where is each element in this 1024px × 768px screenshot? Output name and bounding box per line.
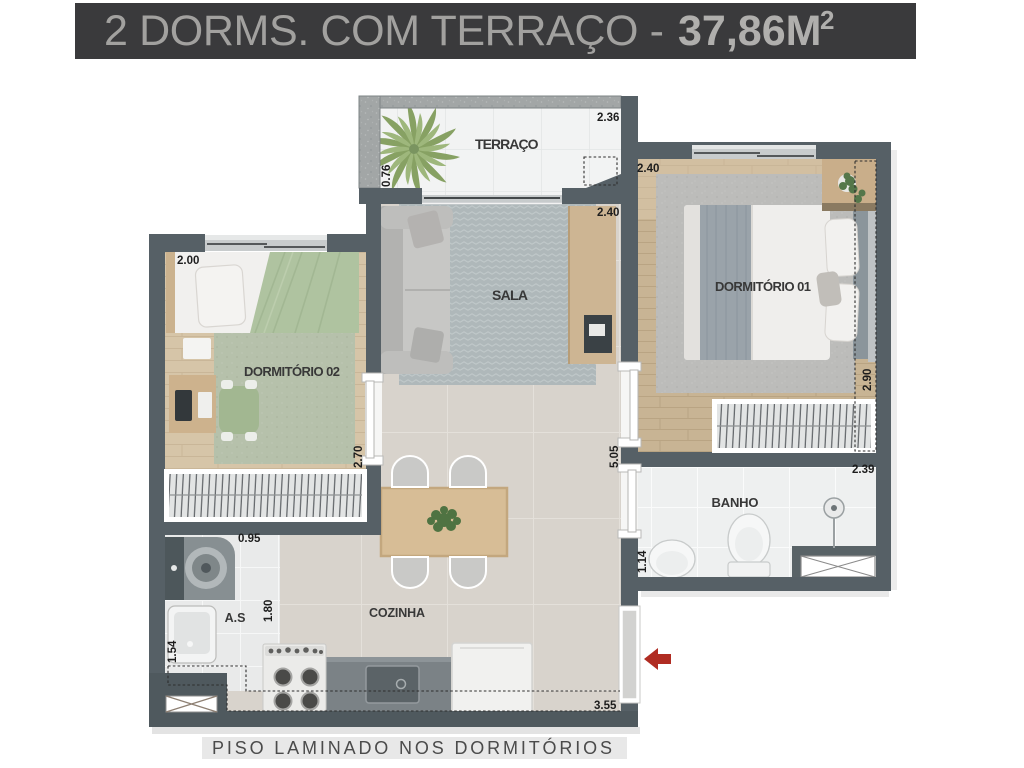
svg-text:2.00: 2.00 [177,255,199,267]
svg-text:2: 2 [820,5,834,35]
svg-text:2.40: 2.40 [637,163,659,175]
svg-text:BANHO: BANHO [712,495,759,510]
svg-text:5.05: 5.05 [609,445,621,468]
svg-text:0.95: 0.95 [238,533,261,545]
svg-text:1.80: 1.80 [263,600,275,622]
svg-text:2.40: 2.40 [597,207,619,219]
svg-text:2 DORMS. COM TERRAÇO -: 2 DORMS. COM TERRAÇO - [104,7,664,55]
svg-text:COZINHA: COZINHA [369,606,425,620]
svg-text:TERRAÇO: TERRAÇO [475,136,539,152]
svg-text:3.55: 3.55 [594,700,617,712]
svg-text:DORMITÓRIO 02: DORMITÓRIO 02 [244,364,340,379]
svg-text:2.39: 2.39 [852,464,874,476]
svg-text:1.14: 1.14 [637,550,649,573]
svg-text:37,86M: 37,86M [678,7,821,55]
svg-text:DORMITÓRIO 01: DORMITÓRIO 01 [715,279,811,294]
svg-text:A.S: A.S [225,611,246,625]
svg-text:2.36: 2.36 [597,112,619,124]
svg-text:PISO LAMINADO NOS DORMITÓRIOS: PISO LAMINADO NOS DORMITÓRIOS [212,737,616,758]
svg-text:1.54: 1.54 [167,640,179,663]
svg-text:SALA: SALA [492,287,528,303]
svg-text:2.70: 2.70 [353,446,365,468]
svg-text:2.90: 2.90 [862,369,874,391]
svg-text:0.76: 0.76 [381,165,393,187]
